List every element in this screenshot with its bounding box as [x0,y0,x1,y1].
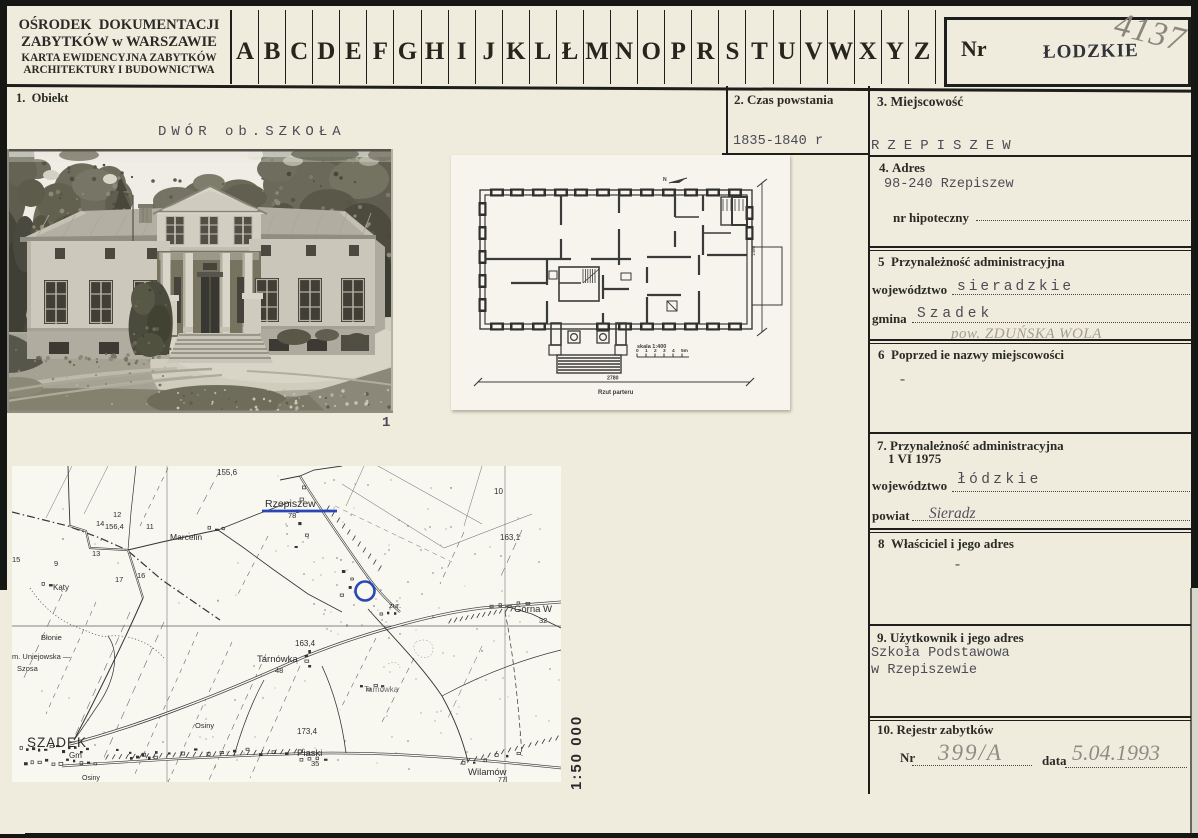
svg-text:Błonie: Błonie [41,633,62,642]
svg-text:Rzut parteru: Rzut parteru [598,390,634,396]
svg-text:4: 4 [672,348,675,354]
svg-text:163,1: 163,1 [500,533,521,542]
svg-text:173,4: 173,4 [297,727,318,736]
svg-text:Górna W: Górna W [514,604,552,615]
svg-text:11: 11 [146,522,154,531]
svg-text:2780: 2780 [607,376,619,382]
svg-text:0: 0 [636,348,639,354]
svg-text:skala 1:400: skala 1:400 [637,344,666,350]
svg-text:9: 9 [54,559,58,568]
svg-text:Kąty: Kąty [53,583,69,592]
svg-text:Szosa: Szosa [17,664,39,673]
svg-text:10: 10 [494,487,503,496]
svg-text:3: 3 [663,348,666,354]
svg-text:2: 2 [654,348,657,354]
svg-text:156,4: 156,4 [105,522,124,531]
svg-text:Rzepiszew: Rzepiszew [265,498,316,510]
svg-text:17: 17 [115,575,123,584]
svg-text:Gm: Gm [69,751,82,760]
svg-text:12: 12 [113,510,121,519]
svg-text:13: 13 [92,549,100,558]
svg-text:14: 14 [96,519,104,528]
svg-text:48: 48 [275,666,283,675]
svg-text:163,4: 163,4 [295,639,316,648]
svg-text:Tarnówka: Tarnówka [257,654,298,665]
svg-text:5m: 5m [681,348,688,354]
svg-text:Piaski: Piaski [297,748,322,759]
svg-text:155,6: 155,6 [217,468,238,477]
svg-text:N: N [663,177,667,183]
svg-text:Osiny: Osiny [82,775,100,782]
svg-text:Tarnówka: Tarnówka [364,685,399,694]
svg-text:15: 15 [12,555,20,564]
svg-text:SZADEK: SZADEK [27,735,87,750]
svg-text:16: 16 [137,571,145,580]
svg-text:Marcelin: Marcelin [170,532,202,542]
svg-text:77l: 77l [498,777,508,782]
svg-text:1: 1 [645,348,648,354]
svg-text:Osiny: Osiny [195,721,214,730]
svg-text:m. Uniejowska —: m. Uniejowska — [12,652,71,661]
svg-text:1480: 1480 [751,245,756,256]
svg-text:35: 35 [311,759,319,768]
svg-text:żur.: żur. [389,601,401,610]
svg-text:32: 32 [539,616,547,625]
